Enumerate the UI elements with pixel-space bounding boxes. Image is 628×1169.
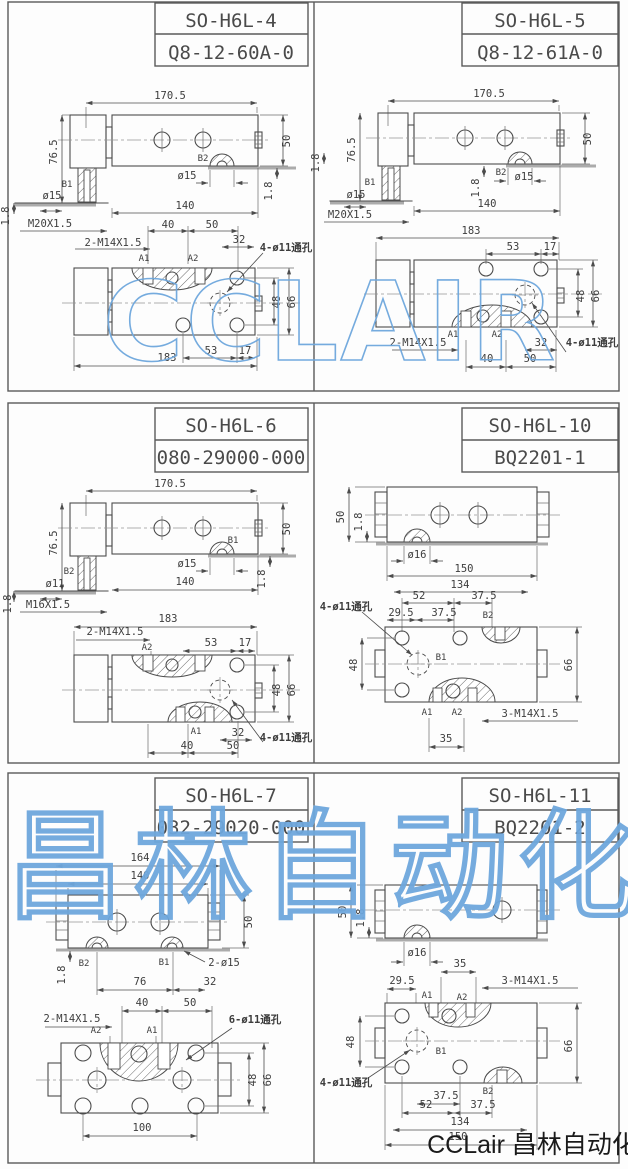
dim-label: 150 (455, 563, 474, 575)
hole-note-label: 4-ø11通孔 (260, 731, 313, 744)
port-label: B1 (159, 958, 170, 968)
port-label: A1 (147, 1026, 158, 1036)
dim-label: 1.8 (470, 179, 482, 198)
dim-label: 140 (176, 576, 195, 588)
port-label: A2 (91, 1026, 102, 1036)
port-label: B1 (436, 653, 447, 663)
footer-brand: CCLair 昌林自动化 (427, 1131, 628, 1159)
dim-label: 37.5 (433, 1090, 458, 1102)
port-label: B2 (483, 1087, 494, 1097)
dim-label: 29.5 (388, 607, 413, 619)
port-label: B1 (436, 1047, 447, 1057)
dim-label: 35 (454, 958, 467, 970)
dim-label: 32 (232, 727, 245, 739)
side-view (14, 103, 296, 231)
dim-label: ø16 (408, 549, 427, 561)
port-label: A2 (457, 993, 468, 1003)
side-view (324, 101, 596, 222)
panel-so-h6l-10: SO-H6L-10 BQ2201-1 501.8ø1615 (320, 408, 618, 752)
dim-label: 1.8 (310, 154, 322, 173)
model-number: SO-H6L-10 (489, 415, 592, 437)
dim-label: 2-ø15 (208, 957, 240, 969)
watermark-cclair: CCLAIR (103, 258, 557, 386)
hole-note-label: 4-ø11通孔 (260, 241, 313, 254)
dim-label: ø15 (43, 190, 62, 202)
dim-label: 1.8 (263, 182, 275, 201)
watermark-changlin: 昌林自动化 (6, 798, 628, 936)
dim-label: ø15 (178, 558, 197, 570)
dim-label: M16X1.5 (26, 599, 70, 611)
dim-label: 140 (176, 200, 195, 212)
port-label: A1 (422, 991, 433, 1001)
dim-label: 50 (582, 133, 594, 146)
dim-label: 40 (162, 219, 175, 231)
dim-label: 76.5 (346, 137, 358, 162)
dim-label: 66 (262, 1074, 274, 1087)
port-label: B1 (228, 536, 239, 546)
dim-label: M20X1.5 (28, 218, 72, 230)
dim-label: 1.8 (353, 513, 365, 532)
model-number: SO-H6L-6 (185, 415, 277, 437)
dim-label: 3-M14X1.5 (502, 708, 559, 720)
dim-label: 66 (590, 290, 602, 303)
model-number: SO-H6L-4 (185, 10, 277, 32)
dim-label: 2-M14X1.5 (44, 1013, 101, 1025)
dim-label: 183 (462, 225, 481, 237)
title-block: SO-H6L-10 BQ2201-1 (462, 408, 618, 472)
port-label: A1 (422, 708, 433, 718)
dim-label: 1.8 (56, 966, 68, 985)
top-view (360, 972, 582, 1150)
part-code: Q8-12-61A-0 (477, 42, 603, 64)
dim-label: 100 (133, 1122, 152, 1134)
dim-label: 32 (204, 976, 217, 988)
part-code: BQ2201-1 (494, 447, 586, 469)
port-label: B2 (79, 959, 90, 969)
dim-label: 35 (440, 733, 453, 745)
dim-label: ø16 (408, 947, 427, 959)
dim-label: 66 (286, 684, 298, 697)
port-label: B2 (64, 567, 75, 577)
port-label: B1 (365, 178, 376, 188)
dim-label: 170.5 (473, 88, 505, 100)
dim-label: 53 (205, 637, 218, 649)
side-view (349, 487, 560, 592)
dim-label: 48 (575, 290, 587, 303)
dimension-labels: 170.576.550B1ø151.8B2ø111.8M16X1.5140183… (2, 478, 313, 752)
dim-label: 37.5 (470, 1099, 495, 1111)
dim-label: M20X1.5 (328, 209, 372, 221)
dim-label: 29.5 (389, 975, 414, 987)
dim-label: 50 (206, 219, 219, 231)
dim-label: 2-M14X1.5 (85, 237, 142, 249)
dim-label: 76.5 (48, 530, 60, 555)
dim-label: ø15 (347, 189, 366, 201)
port-label: B1 (62, 180, 73, 190)
dim-label: 1.8 (0, 207, 12, 226)
dim-label: 2-M14X1.5 (87, 626, 144, 638)
dim-label: 17 (544, 241, 557, 253)
dim-label: 140 (478, 198, 497, 210)
dim-label: 50 (281, 135, 293, 148)
port-label: A1 (191, 727, 202, 737)
dim-label: 48 (345, 1036, 357, 1049)
drawing-sheet: SO-H6L-4 Q8-12-60A-0 (0, 0, 628, 1169)
dim-label: 183 (159, 613, 178, 625)
port-label: B2 (198, 154, 209, 164)
dim-label: 134 (451, 1116, 470, 1128)
port-label: A2 (452, 708, 463, 718)
hole-note-label: 4-ø11通孔 (566, 336, 619, 349)
dim-label: ø15 (515, 171, 534, 183)
dim-label: ø15 (178, 170, 197, 182)
dim-label: 66 (563, 659, 575, 672)
port-label: A2 (142, 643, 153, 653)
port-label: B2 (483, 611, 494, 621)
dim-label: 52 (413, 590, 426, 602)
dim-label: 40 (181, 740, 194, 752)
dim-label: 53 (507, 241, 520, 253)
dim-label: 48 (348, 659, 360, 672)
dim-label: 76 (134, 976, 147, 988)
dim-label: ø11 (46, 578, 65, 590)
hole-note-label: 6-ø11通孔 (229, 1013, 282, 1026)
dim-label: 170.5 (154, 90, 186, 102)
title-block: SO-H6L-6 080-29000-000 (155, 408, 308, 472)
dim-label: 1.8 (2, 595, 14, 614)
hole-note-label: 4-ø11通孔 (320, 1076, 373, 1089)
dim-label: 52 (420, 1099, 433, 1111)
part-code: Q8-12-60A-0 (168, 42, 294, 64)
dim-label: 17 (239, 637, 252, 649)
port-label: B2 (496, 168, 507, 178)
dim-label: 40 (136, 997, 149, 1009)
dim-label: 48 (271, 684, 283, 697)
hole-note-label: 4-ø11通孔 (320, 600, 373, 613)
engineering-drawing: SO-H6L-4 Q8-12-60A-0 (0, 0, 628, 1169)
dim-label: 50 (281, 523, 293, 536)
dim-label: 37.5 (431, 607, 456, 619)
dim-label: 32 (233, 234, 246, 246)
title-block: SO-H6L-5 Q8-12-61A-0 (462, 3, 618, 66)
dim-label: 48 (247, 1074, 259, 1087)
top-view (362, 598, 582, 752)
dim-label: 66 (563, 1040, 575, 1053)
dim-label: 50 (335, 511, 347, 524)
dim-label: 76.5 (48, 139, 60, 164)
dim-label: 170.5 (154, 478, 186, 490)
model-number: SO-H6L-5 (494, 10, 586, 32)
dim-label: 1.8 (256, 570, 268, 589)
dim-label: 3-M14X1.5 (502, 975, 559, 987)
dim-label: 50 (184, 997, 197, 1009)
part-code: 080-29000-000 (157, 447, 306, 469)
dim-label: 50 (227, 740, 240, 752)
dim-label: 134 (451, 579, 470, 591)
panel-so-h6l-6: SO-H6L-6 080-29000-000 (2, 408, 313, 758)
dim-label: 37.5 (471, 590, 496, 602)
title-block: SO-H6L-4 Q8-12-60A-0 (155, 3, 308, 66)
